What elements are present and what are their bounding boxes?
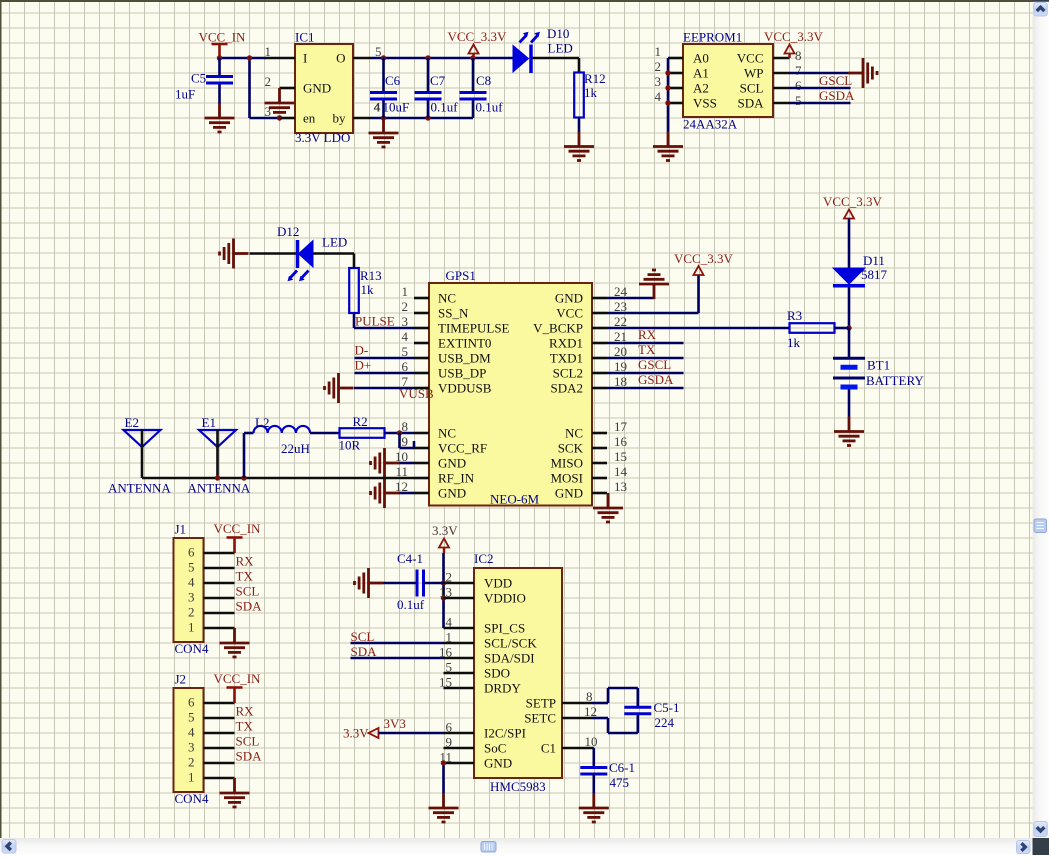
svg-text:R12: R12: [584, 71, 606, 86]
svg-text:2: 2: [188, 755, 195, 770]
svg-text:VCC_3.3V: VCC_3.3V: [823, 194, 882, 209]
svg-text:R13: R13: [360, 268, 382, 283]
svg-text:D12: D12: [277, 224, 299, 239]
svg-text:RX: RX: [236, 704, 255, 719]
svg-text:VCC_RF: VCC_RF: [438, 441, 487, 456]
svg-text:VDD: VDD: [484, 576, 512, 591]
svg-text:SCL: SCL: [351, 629, 375, 644]
svg-text:SCL: SCL: [236, 584, 260, 599]
svg-text:3: 3: [188, 740, 195, 755]
svg-text:BATTERY: BATTERY: [866, 373, 924, 388]
svg-text:TX: TX: [236, 719, 254, 734]
svg-text:4: 4: [374, 100, 381, 115]
svg-text:15: 15: [439, 675, 452, 690]
svg-text:5: 5: [795, 93, 802, 108]
svg-text:8: 8: [586, 689, 593, 704]
svg-text:17: 17: [614, 419, 628, 434]
svg-text:MISO: MISO: [550, 456, 583, 471]
svg-text:SCL: SCL: [740, 81, 764, 96]
svg-text:475: 475: [610, 775, 630, 790]
svg-text:RF_IN: RF_IN: [438, 471, 475, 486]
svg-text:5: 5: [446, 660, 453, 675]
svg-text:ANTENNA: ANTENNA: [108, 481, 171, 496]
svg-text:WP: WP: [744, 66, 764, 81]
svg-text:13: 13: [439, 585, 452, 600]
svg-text:3: 3: [655, 74, 662, 89]
svg-text:GND: GND: [555, 291, 583, 306]
svg-text:VCC_3.3V: VCC_3.3V: [674, 251, 733, 266]
svg-text:A2: A2: [693, 81, 709, 96]
svg-text:SPI_CS: SPI_CS: [484, 621, 525, 636]
svg-text:TX: TX: [638, 342, 656, 357]
svg-text:NC: NC: [438, 291, 456, 306]
svg-text:VDDUSB: VDDUSB: [438, 381, 492, 396]
svg-text:GND: GND: [303, 81, 331, 96]
svg-text:1: 1: [655, 44, 662, 59]
svg-text:LED: LED: [322, 235, 347, 250]
svg-text:D+: D+: [355, 358, 372, 373]
svg-text:USB_DP: USB_DP: [438, 366, 486, 381]
svg-text:USB_DM: USB_DM: [438, 351, 491, 366]
svg-text:I: I: [303, 51, 307, 66]
svg-text:VUSB: VUSB: [399, 386, 434, 401]
svg-text:SCK: SCK: [558, 441, 584, 456]
svg-text:C1: C1: [541, 741, 556, 756]
svg-text:D-: D-: [355, 343, 369, 358]
svg-text:SDA2: SDA2: [550, 381, 583, 396]
svg-text:6: 6: [446, 720, 453, 735]
svg-text:VDDIO: VDDIO: [484, 591, 526, 606]
svg-text:VCC_3.3V: VCC_3.3V: [448, 29, 507, 44]
svg-text:16: 16: [614, 434, 628, 449]
svg-text:by: by: [333, 111, 347, 126]
svg-text:C7: C7: [430, 73, 446, 88]
svg-text:SDO: SDO: [484, 666, 510, 681]
svg-text:SDA: SDA: [737, 96, 764, 111]
svg-text:GSCL: GSCL: [819, 73, 852, 88]
svg-text:RX: RX: [236, 554, 255, 569]
svg-text:3V3: 3V3: [384, 716, 406, 731]
svg-text:1k: 1k: [787, 335, 801, 350]
svg-text:J1: J1: [175, 522, 187, 537]
svg-text:VCC: VCC: [556, 306, 583, 321]
svg-text:5: 5: [188, 710, 195, 725]
svg-text:10: 10: [585, 734, 598, 749]
svg-text:R2: R2: [353, 414, 368, 429]
svg-text:C4-1: C4-1: [397, 551, 423, 566]
svg-text:1: 1: [265, 44, 272, 59]
svg-text:CON4: CON4: [175, 641, 209, 656]
svg-text:3: 3: [265, 104, 272, 119]
svg-text:TIMEPULSE: TIMEPULSE: [438, 321, 510, 336]
svg-text:C8: C8: [476, 73, 491, 88]
svg-text:224: 224: [655, 715, 675, 730]
svg-text:C5-1: C5-1: [654, 700, 680, 715]
svg-text:en: en: [303, 111, 316, 126]
svg-text:7: 7: [795, 63, 802, 78]
svg-text:RXD1: RXD1: [549, 336, 583, 351]
svg-text:EXTINT0: EXTINT0: [438, 336, 491, 351]
svg-text:22uH: 22uH: [281, 441, 310, 456]
svg-text:2: 2: [446, 570, 453, 585]
svg-text:24AA32A: 24AA32A: [683, 117, 738, 132]
svg-text:6: 6: [188, 545, 195, 560]
svg-text:MOSI: MOSI: [550, 471, 583, 486]
svg-text:0.1uf: 0.1uf: [397, 597, 425, 612]
svg-text:O: O: [336, 51, 345, 66]
svg-text:3.3V: 3.3V: [343, 726, 369, 741]
svg-text:1k: 1k: [361, 282, 375, 297]
svg-text:2: 2: [655, 59, 662, 74]
svg-text:GND: GND: [484, 756, 512, 771]
svg-text:0.1uf: 0.1uf: [476, 100, 504, 115]
svg-text:10uF: 10uF: [383, 100, 410, 115]
svg-text:VCC_3.3V: VCC_3.3V: [764, 29, 823, 44]
svg-text:C5: C5: [191, 71, 206, 86]
svg-text:GND: GND: [438, 456, 466, 471]
svg-text:1: 1: [446, 630, 453, 645]
svg-text:I2C/SPI: I2C/SPI: [484, 726, 526, 741]
svg-text:VCC_IN: VCC_IN: [214, 671, 262, 686]
svg-text:1: 1: [402, 284, 409, 299]
svg-text:SCL2: SCL2: [553, 366, 583, 381]
svg-text:VCC: VCC: [737, 51, 764, 66]
svg-text:4: 4: [655, 89, 662, 104]
svg-text:10R: 10R: [339, 438, 361, 453]
svg-text:BT1: BT1: [867, 358, 890, 373]
svg-text:A0: A0: [693, 51, 709, 66]
svg-text:2: 2: [188, 605, 195, 620]
svg-text:DRDY: DRDY: [484, 681, 521, 696]
svg-text:14: 14: [614, 464, 628, 479]
svg-text:GND: GND: [438, 486, 466, 501]
svg-text:SCL/SCK: SCL/SCK: [484, 636, 537, 651]
svg-text:13: 13: [614, 479, 627, 494]
svg-text:0.1uf: 0.1uf: [431, 100, 459, 115]
svg-text:1k: 1k: [584, 85, 598, 100]
svg-text:NC: NC: [565, 426, 583, 441]
svg-text:E2: E2: [125, 415, 139, 430]
svg-text:8: 8: [795, 48, 802, 63]
svg-text:5817: 5817: [861, 267, 888, 282]
svg-text:IC1: IC1: [295, 30, 315, 45]
svg-text:J2: J2: [175, 672, 187, 687]
svg-text:VSS: VSS: [693, 96, 717, 111]
svg-text:SDA: SDA: [236, 599, 263, 614]
svg-text:SETP: SETP: [526, 696, 556, 711]
svg-text:TX: TX: [236, 569, 254, 584]
svg-text:SETC: SETC: [524, 711, 556, 726]
svg-text:4: 4: [188, 575, 195, 590]
svg-text:RX: RX: [638, 327, 657, 342]
svg-text:6: 6: [188, 695, 195, 710]
svg-text:TXD1: TXD1: [550, 351, 583, 366]
svg-text:GPS1: GPS1: [446, 268, 476, 283]
svg-text:EEPROM1: EEPROM1: [683, 30, 742, 45]
svg-text:VCC_IN: VCC_IN: [199, 30, 247, 45]
svg-text:4: 4: [402, 329, 409, 344]
svg-text:1: 1: [188, 770, 195, 785]
svg-text:VCC_IN: VCC_IN: [214, 521, 262, 536]
svg-text:E1: E1: [202, 415, 216, 430]
svg-text:D10: D10: [547, 26, 569, 41]
svg-text:GSCL: GSCL: [638, 357, 671, 372]
svg-text:R3: R3: [787, 308, 802, 323]
svg-text:SDA: SDA: [351, 644, 378, 659]
svg-text:C6: C6: [385, 73, 401, 88]
svg-text:SDA/SDI: SDA/SDI: [484, 651, 535, 666]
svg-text:HMC5983: HMC5983: [490, 779, 546, 794]
svg-text:GSDA: GSDA: [819, 88, 855, 103]
svg-text:4: 4: [446, 615, 453, 630]
svg-text:IC2: IC2: [474, 551, 494, 566]
svg-text:5: 5: [188, 560, 195, 575]
svg-text:SDA: SDA: [236, 749, 263, 764]
svg-text:2: 2: [402, 299, 409, 314]
svg-text:GSDA: GSDA: [638, 372, 674, 387]
svg-text:L2: L2: [255, 415, 269, 430]
svg-text:2: 2: [265, 74, 272, 89]
svg-text:PULSE: PULSE: [355, 314, 395, 329]
svg-text:SCL: SCL: [236, 734, 260, 749]
svg-text:3.3V: 3.3V: [432, 523, 458, 538]
svg-text:NEO-6M: NEO-6M: [490, 492, 540, 507]
svg-text:V_BCKP: V_BCKP: [533, 321, 583, 336]
svg-text:NC: NC: [438, 426, 456, 441]
svg-text:C6-1: C6-1: [609, 760, 635, 775]
svg-text:6: 6: [795, 78, 802, 93]
svg-text:CON4: CON4: [175, 791, 209, 806]
svg-text:3.3V LDO: 3.3V LDO: [295, 130, 350, 145]
svg-text:A1: A1: [693, 66, 709, 81]
svg-text:3: 3: [402, 314, 409, 329]
svg-text:SoC: SoC: [484, 741, 506, 756]
svg-text:3: 3: [188, 590, 195, 605]
svg-text:15: 15: [614, 449, 627, 464]
svg-text:LED: LED: [548, 41, 573, 56]
svg-text:4: 4: [188, 725, 195, 740]
svg-text:ANTENNA: ANTENNA: [188, 481, 251, 496]
svg-text:1: 1: [188, 620, 195, 635]
svg-text:SS_N: SS_N: [438, 306, 469, 321]
svg-text:D11: D11: [863, 253, 885, 268]
svg-text:1uF: 1uF: [175, 87, 195, 102]
svg-text:GND: GND: [555, 486, 583, 501]
svg-text:9: 9: [446, 735, 453, 750]
